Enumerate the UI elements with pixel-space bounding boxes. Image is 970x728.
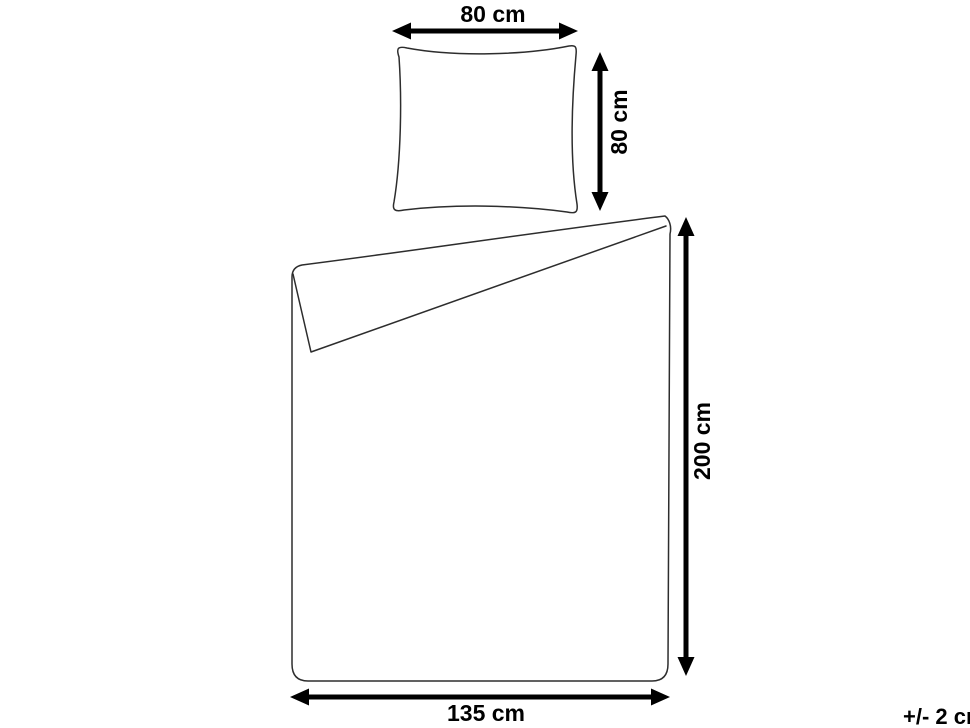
pillow-width-label: 80 cm — [460, 1, 525, 27]
arrow-head-right-icon — [559, 23, 578, 40]
diagram-svg: 80 cm 80 cm 200 cm 135 cm +/- 2 cm — [0, 0, 970, 728]
bedding-dimensions-diagram: 80 cm 80 cm 200 cm 135 cm +/- 2 cm — [0, 0, 970, 728]
arrow-head-down-icon — [678, 657, 695, 676]
pillow-outline — [393, 46, 577, 213]
arrow-head-up-icon — [592, 52, 609, 71]
pillow-height-label: 80 cm — [606, 89, 632, 154]
duvet-outline — [292, 216, 671, 681]
arrow-head-up-icon — [678, 217, 695, 236]
duvet-width-label: 135 cm — [447, 700, 525, 726]
arrow-head-left-icon — [290, 689, 309, 706]
duvet-height-label: 200 cm — [689, 402, 715, 480]
tolerance-label: +/- 2 cm — [903, 704, 970, 728]
arrow-head-down-icon — [592, 192, 609, 211]
arrow-head-right-icon — [651, 689, 670, 706]
arrow-head-left-icon — [392, 23, 411, 40]
